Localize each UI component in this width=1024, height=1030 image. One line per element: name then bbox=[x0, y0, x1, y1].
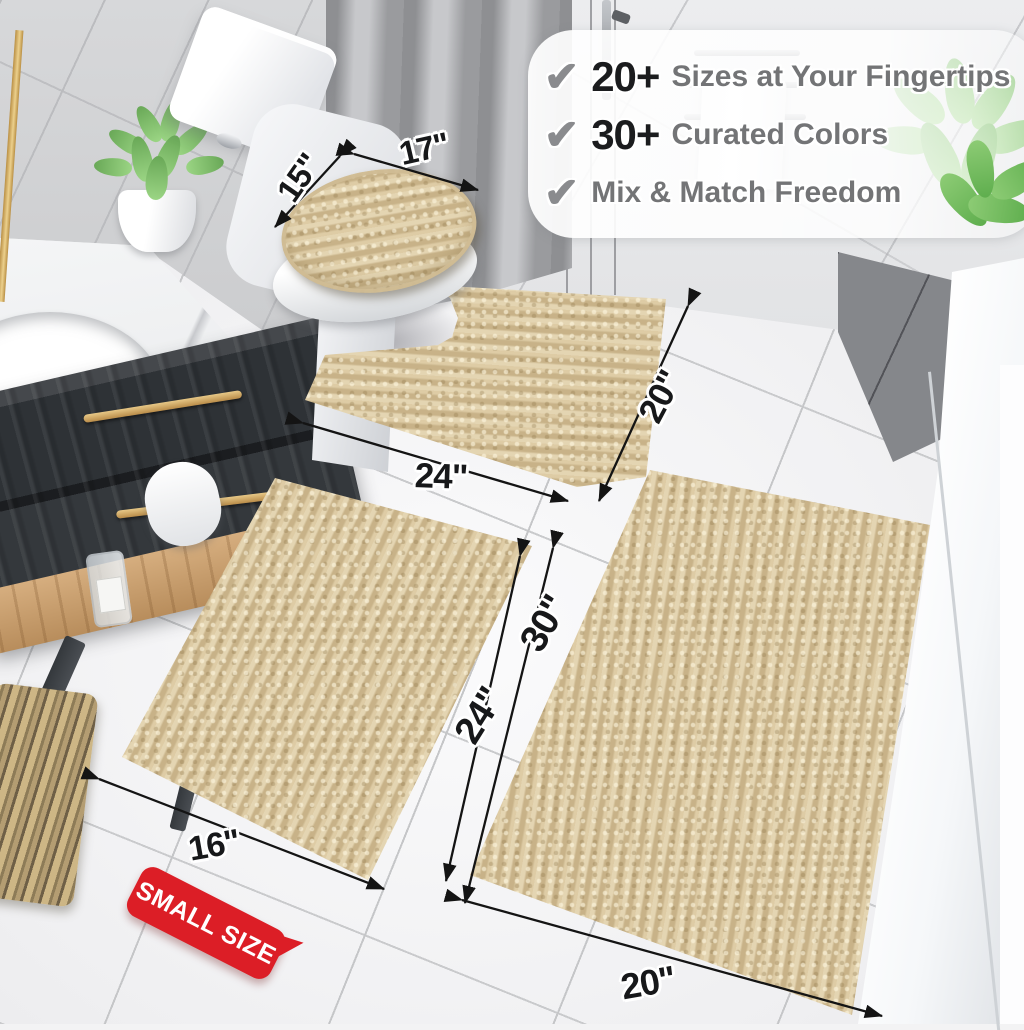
product-photo-bath-rug-set: { "callout": { "items": [ {"icon": "chec… bbox=[0, 0, 1024, 1024]
bottle-label bbox=[96, 576, 126, 613]
check-icon: ✔ bbox=[544, 172, 579, 214]
bathtub-inner-gloss bbox=[1000, 365, 1024, 1024]
feature-stat: 20+ bbox=[591, 56, 659, 98]
feature-label: Sizes at Your Fingertips bbox=[671, 62, 1010, 92]
check-icon: ✔ bbox=[544, 114, 579, 156]
feature-label: Curated Colors bbox=[671, 120, 888, 150]
dimension-label-contour-width: 24" bbox=[414, 456, 468, 498]
feature-row: ✔ 30+ Curated Colors bbox=[544, 106, 1024, 164]
feature-callout-panel: ✔ 20+ Sizes at Your Fingertips ✔ 30+ Cur… bbox=[528, 30, 1024, 238]
badge-pointer-tail bbox=[275, 935, 304, 963]
feature-stat: 30+ bbox=[591, 114, 659, 156]
feature-label: Mix & Match Freedom bbox=[591, 178, 901, 208]
check-icon: ✔ bbox=[544, 56, 579, 98]
feature-row: ✔ 20+ Sizes at Your Fingertips bbox=[544, 48, 1024, 106]
